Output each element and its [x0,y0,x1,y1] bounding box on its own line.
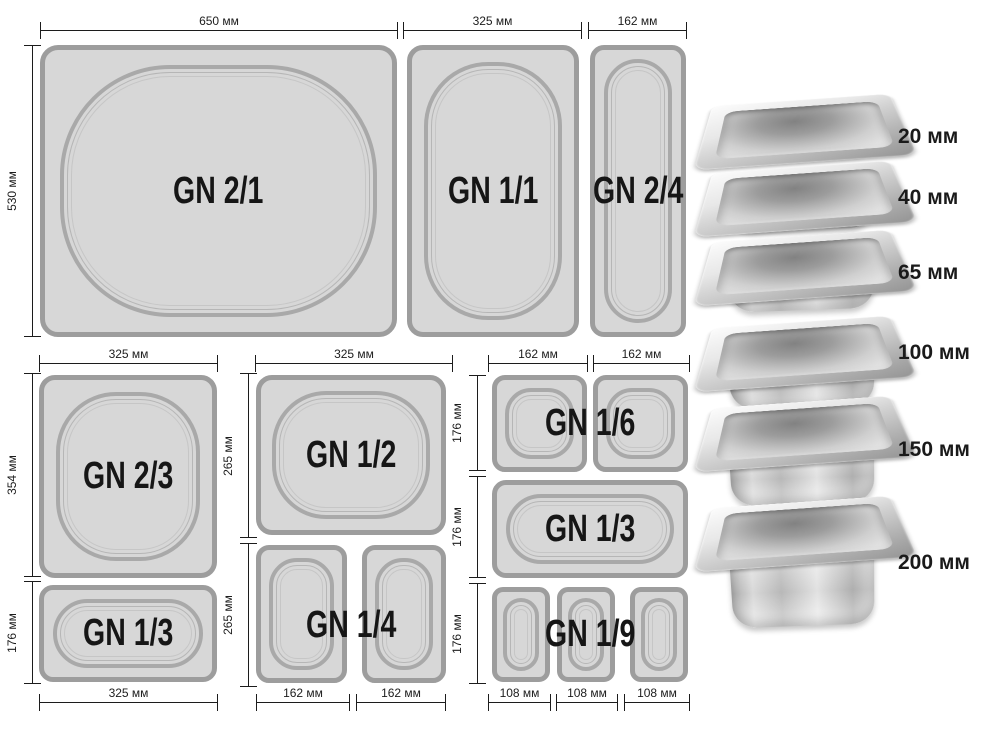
dim-label: 108 мм [637,686,677,700]
dim-label: 162 мм [381,686,421,700]
dim-label: 354 мм [5,455,19,495]
pan-gn-1-9-2 [557,587,615,682]
pan-well [606,388,675,459]
h-dimension-650mm: 650 мм [40,30,398,31]
h-dimension-325mm-groupA-top: 325 мм [39,363,218,364]
pan-gn-1-2: GN 1/2 [256,375,446,535]
dim-label: 325 мм [109,347,149,361]
depth-label-40mm: 40 мм [898,186,988,210]
pan-well [503,598,539,671]
dim-label: 325 мм [473,14,513,28]
pan-rim [694,230,918,307]
pan-well [641,598,677,671]
pan-gn-1-6-right [593,375,688,472]
pan-well [375,558,433,670]
h-dimension-108mm-1: 108 мм [488,702,551,703]
dim-label: 176 мм [5,613,19,653]
pan-well [604,59,672,323]
pan-opening [715,403,895,461]
v-dimension-176mm-groupA: 176 мм [32,581,33,684]
dim-label: 176 мм [450,614,464,654]
pan-rim [694,496,918,573]
pan-rim [694,94,918,171]
dim-label: 162 мм [618,14,658,28]
v-dimension-176mm-groupC-2: 176 мм [477,476,478,578]
v-dimension-530mm: 530 мм [32,45,33,337]
dim-label: 265 мм [221,595,235,635]
dim-label: 108 мм [500,686,540,700]
dim-label: 162 мм [622,347,662,361]
h-dimension-162mm-groupC-top1: 162 мм [488,363,588,364]
depth-label-200mm: 200 мм [898,551,988,575]
h-dimension-162mm-groupB-bottom1: 162 мм [256,702,350,703]
pan-gn-1-9-1 [492,587,550,682]
gastronorm-size-chart: 650 мм 325 мм 162 мм 530 мм GN 2/1 GN 1/… [0,0,998,734]
pan-gn-2-1: GN 2/1 [40,45,397,337]
pan-rim [694,316,918,393]
pan-rim [694,396,918,473]
pan-well [424,62,562,320]
depth-label-65mm: 65 мм [898,261,988,285]
pan-gn-1-9-3 [630,587,688,682]
dim-label: 176 мм [450,507,464,547]
pan-opening [715,323,895,381]
dim-label: 325 мм [109,686,149,700]
pan-opening [715,101,895,159]
pan-gn-1-1: GN 1/1 [407,45,579,337]
h-dimension-162mm-groupB-bottom2: 162 мм [356,702,446,703]
pan-gn-2-3: GN 2/3 [39,375,217,578]
pan-gn-1-3-left: GN 1/3 [39,585,217,682]
h-dimension-325mm-groupB-top: 325 мм [255,363,453,364]
pan-well [53,599,203,668]
dim-label: 108 мм [567,686,607,700]
pan-opening [715,237,895,295]
pan-well [272,391,430,519]
pan-rim [694,161,918,238]
depth-label-150mm: 150 мм [898,438,988,462]
h-dimension-108mm-3: 108 мм [624,702,690,703]
dim-label: 530 мм [5,171,19,211]
dim-label: 265 мм [221,436,235,476]
h-dimension-108mm-2: 108 мм [556,702,618,703]
pan-gn-2-4: GN 2/4 [590,45,686,337]
pan-well [269,558,334,670]
dim-label: 162 мм [283,686,323,700]
pan-gn-1-6-left [492,375,587,472]
pan-well [505,388,574,459]
dim-label: 325 мм [334,347,374,361]
pan-gn-1-4-right [362,545,446,683]
pan-well [60,65,377,317]
depth-label-100mm: 100 мм [898,341,988,365]
h-dimension-162mm-row1: 162 мм [588,30,687,31]
pan-opening [715,168,895,226]
v-dimension-176mm-groupC-3: 176 мм [477,583,478,684]
h-dimension-325mm-row1: 325 мм [403,30,582,31]
pan-gn-1-4-left [256,545,347,683]
pan-opening [715,503,895,561]
pan-well [506,494,674,564]
v-dimension-354mm: 354 мм [32,373,33,577]
depth-label-20mm: 20 мм [898,125,988,149]
h-dimension-162mm-groupC-top2: 162 мм [593,363,690,364]
dim-label: 650 мм [199,14,239,28]
h-dimension-325mm-groupA-bottom: 325 мм [39,702,218,703]
pan-gn-1-3-right: GN 1/3 [492,480,688,578]
pan-well [568,598,604,671]
dim-label: 162 мм [518,347,558,361]
pan-well [56,392,200,561]
dim-label: 176 мм [450,403,464,443]
v-dimension-265mm-lower: 265 мм [248,543,249,687]
v-dimension-176mm-groupC-1: 176 мм [477,375,478,471]
v-dimension-265mm-upper: 265 мм [248,373,249,538]
